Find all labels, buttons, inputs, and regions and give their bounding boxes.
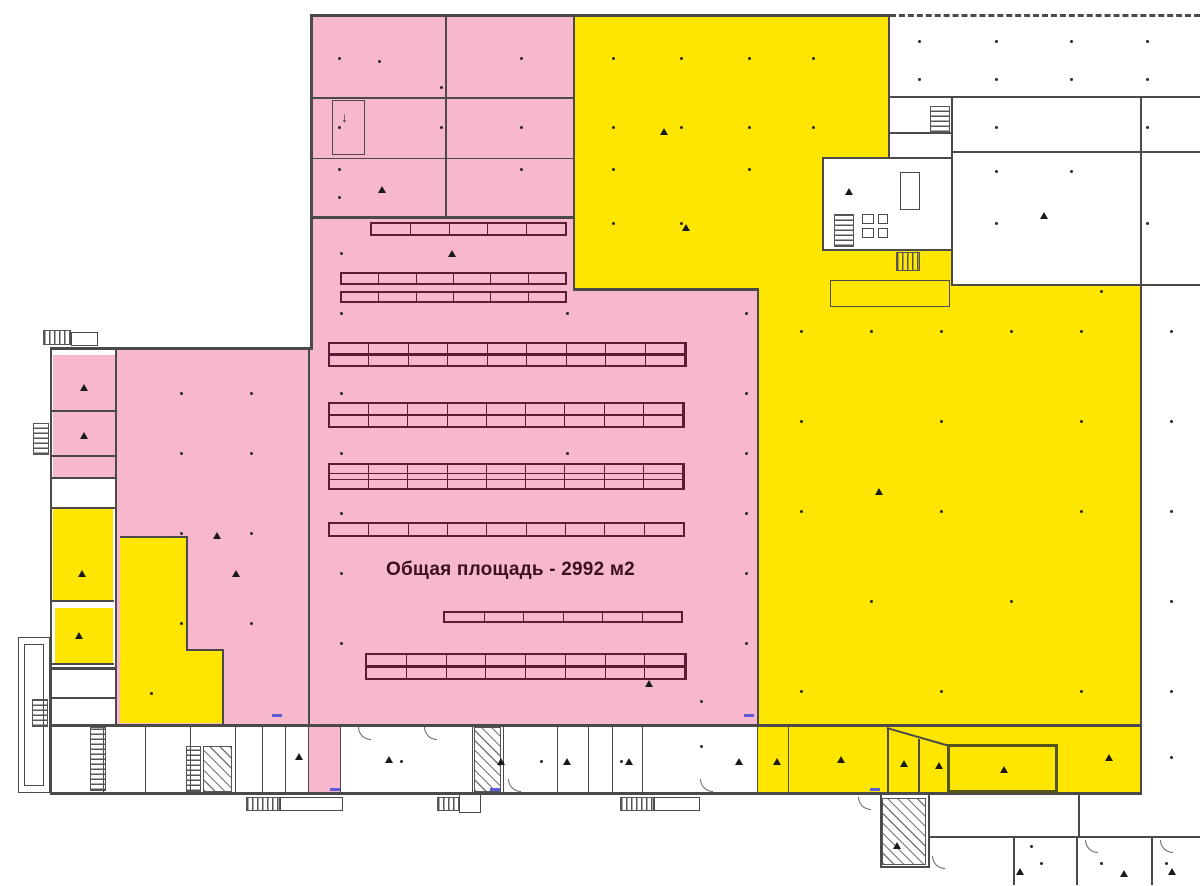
wall	[186, 536, 188, 650]
wall	[928, 794, 930, 868]
column-grid-dot	[612, 126, 615, 129]
stairs-icon	[203, 746, 232, 792]
door-arc	[424, 727, 437, 740]
survey-marker	[625, 758, 633, 765]
wall	[340, 726, 341, 793]
column-grid-dot	[1040, 862, 1043, 865]
wall	[918, 739, 920, 793]
wall	[262, 726, 263, 793]
dimension-mark	[272, 714, 282, 717]
column-grid-dot	[800, 330, 803, 333]
dimension-mark	[330, 788, 340, 791]
storage-rack-row	[340, 291, 567, 303]
column-grid-dot	[1070, 170, 1073, 173]
door-arc	[932, 856, 945, 869]
column-grid-dot	[180, 452, 183, 455]
zone-yellow-north-block	[573, 15, 890, 158]
wall	[757, 726, 758, 793]
wall	[612, 726, 613, 793]
column-grid-dot	[612, 222, 615, 225]
wall	[308, 726, 309, 793]
zone-yellow-l-room-step	[186, 650, 222, 723]
wall	[822, 158, 824, 250]
column-grid-dot	[940, 330, 943, 333]
column-grid-dot	[612, 168, 615, 171]
wall	[588, 726, 589, 793]
column-grid-dot	[340, 642, 343, 645]
wall	[573, 14, 575, 290]
stairs-icon	[896, 252, 920, 271]
wall	[50, 724, 1142, 727]
column-grid-dot	[1146, 78, 1149, 81]
column-grid-dot	[748, 168, 751, 171]
column-grid-dot	[918, 78, 921, 81]
storage-rack-row	[328, 463, 685, 490]
survey-marker	[935, 762, 943, 769]
column-grid-dot	[1146, 126, 1149, 129]
room-outline	[280, 797, 343, 811]
column-grid-dot	[748, 57, 751, 60]
zone-pink-strip-room	[308, 726, 340, 793]
room-outline	[862, 214, 874, 224]
stairs-icon	[90, 727, 106, 791]
wall	[951, 151, 1200, 153]
wall	[50, 455, 115, 457]
wall	[928, 836, 1200, 838]
column-grid-dot	[1170, 330, 1173, 333]
wall	[50, 347, 52, 794]
wall	[557, 726, 558, 793]
survey-marker	[660, 128, 668, 135]
room-outline	[878, 214, 888, 224]
door-arc	[700, 779, 713, 792]
survey-marker	[232, 570, 240, 577]
dimension-mark	[870, 788, 880, 791]
wall	[186, 649, 224, 651]
column-grid-dot	[940, 420, 943, 423]
column-grid-dot	[1170, 690, 1173, 693]
survey-marker	[845, 188, 853, 195]
column-grid-dot	[340, 452, 343, 455]
zone-yellow-west-room-a	[53, 508, 113, 600]
wall	[50, 697, 115, 699]
column-grid-dot	[995, 222, 998, 225]
column-grid-dot	[338, 196, 341, 199]
wall	[222, 649, 224, 726]
column-grid-dot	[1080, 510, 1083, 513]
room-outline	[654, 797, 700, 811]
column-grid-dot	[150, 692, 153, 695]
storage-rack-row	[370, 222, 567, 236]
wall	[310, 216, 573, 219]
column-grid-dot	[520, 168, 523, 171]
dimension-mark	[490, 788, 500, 791]
boundary-dashed-line	[890, 14, 1200, 17]
column-grid-dot	[745, 642, 748, 645]
stairs-icon	[43, 330, 71, 345]
survey-marker	[80, 432, 88, 439]
wall	[788, 726, 789, 793]
survey-marker	[735, 758, 743, 765]
total-area-label: Общая площадь - 2992 м2	[386, 559, 635, 581]
survey-marker	[893, 842, 901, 849]
wall	[757, 288, 759, 726]
column-grid-dot	[612, 57, 615, 60]
column-grid-dot	[1010, 330, 1013, 333]
column-grid-dot	[800, 510, 803, 513]
wall	[310, 14, 313, 350]
column-grid-dot	[800, 420, 803, 423]
column-grid-dot	[1070, 78, 1073, 81]
survey-marker	[1016, 868, 1024, 875]
door-arc	[508, 779, 521, 792]
column-grid-dot	[1146, 222, 1149, 225]
column-grid-dot	[440, 126, 443, 129]
door-arc	[358, 727, 371, 740]
survey-marker	[1000, 766, 1008, 773]
room-outline	[459, 794, 481, 813]
wall	[890, 96, 1200, 98]
wall	[951, 284, 1200, 286]
column-grid-dot	[340, 252, 343, 255]
column-grid-dot	[800, 690, 803, 693]
stairs-icon	[33, 423, 49, 455]
column-grid-dot	[745, 572, 748, 575]
wall	[50, 600, 114, 602]
door-arc	[1085, 840, 1098, 853]
column-grid-dot	[748, 126, 751, 129]
column-grid-dot	[700, 745, 703, 748]
column-grid-dot	[870, 600, 873, 603]
wall	[235, 726, 236, 793]
column-grid-dot	[520, 126, 523, 129]
room-outline	[71, 332, 98, 346]
column-grid-dot	[1080, 690, 1083, 693]
survey-marker	[213, 532, 221, 539]
column-grid-dot	[1080, 420, 1083, 423]
column-grid-dot	[1100, 290, 1103, 293]
wall	[888, 14, 890, 159]
column-grid-dot	[680, 126, 683, 129]
column-grid-dot	[520, 57, 523, 60]
column-grid-dot	[1146, 40, 1149, 43]
wall	[472, 726, 473, 793]
column-grid-dot	[1165, 862, 1168, 865]
column-grid-dot	[995, 78, 998, 81]
door-arc	[858, 797, 871, 810]
column-grid-dot	[940, 690, 943, 693]
column-grid-dot	[440, 86, 443, 89]
survey-marker	[378, 186, 386, 193]
column-grid-dot	[745, 512, 748, 515]
wall	[951, 96, 953, 286]
wall	[310, 14, 888, 17]
column-grid-dot	[338, 57, 341, 60]
wall	[880, 866, 930, 868]
wall	[50, 410, 115, 412]
storage-rack-row	[328, 342, 687, 367]
wall	[822, 157, 951, 159]
survey-marker	[80, 384, 88, 391]
wall	[445, 14, 447, 217]
column-grid-dot	[340, 392, 343, 395]
storage-rack-row	[365, 653, 687, 680]
column-grid-dot	[918, 40, 921, 43]
survey-marker	[448, 250, 456, 257]
wall	[887, 729, 889, 793]
column-grid-dot	[1010, 600, 1013, 603]
wall	[115, 348, 117, 725]
survey-marker	[385, 756, 393, 763]
wall	[50, 477, 115, 479]
survey-marker	[295, 753, 303, 760]
column-grid-dot	[338, 168, 341, 171]
wall	[50, 667, 115, 670]
column-grid-dot	[700, 700, 703, 703]
room-outline	[332, 100, 365, 155]
column-grid-dot	[995, 170, 998, 173]
column-grid-dot	[812, 126, 815, 129]
column-grid-dot	[180, 392, 183, 395]
wall	[1078, 794, 1080, 837]
column-grid-dot	[566, 312, 569, 315]
column-grid-dot	[340, 512, 343, 515]
column-grid-dot	[995, 126, 998, 129]
wall	[50, 507, 115, 509]
room-outline	[24, 644, 44, 786]
column-grid-dot	[1080, 330, 1083, 333]
floor-plan-canvas: Общая площадь - 2992 м2 ↓	[0, 0, 1200, 886]
wall	[310, 158, 573, 159]
column-grid-dot	[745, 312, 748, 315]
storage-rack-row	[340, 272, 567, 285]
wall	[285, 726, 286, 793]
wall	[310, 97, 573, 99]
column-grid-dot	[250, 532, 253, 535]
column-grid-dot	[378, 60, 381, 63]
column-grid-dot	[940, 510, 943, 513]
column-grid-dot	[995, 40, 998, 43]
wall	[1140, 96, 1142, 795]
column-grid-dot	[566, 452, 569, 455]
stairs-icon	[246, 797, 280, 811]
column-grid-dot	[250, 622, 253, 625]
survey-marker	[1105, 754, 1113, 761]
stairs-icon	[186, 746, 201, 792]
room-outline	[830, 280, 950, 307]
stairs-icon	[930, 106, 950, 133]
survey-marker	[1120, 870, 1128, 877]
survey-marker	[837, 756, 845, 763]
dimension-mark	[744, 714, 754, 717]
room-outline	[862, 228, 874, 238]
survey-marker	[682, 224, 690, 231]
wall	[573, 288, 759, 291]
column-grid-dot	[745, 392, 748, 395]
survey-marker	[900, 760, 908, 767]
stairs-icon	[620, 797, 654, 811]
survey-marker	[75, 632, 83, 639]
column-grid-dot	[620, 760, 623, 763]
survey-marker	[773, 758, 781, 765]
column-grid-dot	[340, 572, 343, 575]
column-grid-dot	[540, 760, 543, 763]
column-grid-dot	[400, 760, 403, 763]
column-grid-dot	[340, 312, 343, 315]
column-grid-dot	[1170, 510, 1173, 513]
column-grid-dot	[1170, 600, 1173, 603]
zone-yellow-l-room-vertical	[120, 537, 186, 723]
wall	[1013, 837, 1015, 885]
column-grid-dot	[812, 57, 815, 60]
column-grid-dot	[745, 452, 748, 455]
column-grid-dot	[680, 57, 683, 60]
down-arrow-icon: ↓	[341, 110, 348, 124]
column-grid-dot	[1100, 862, 1103, 865]
storage-rack-row	[328, 402, 685, 428]
door-arc	[1160, 840, 1173, 853]
column-grid-dot	[1070, 40, 1073, 43]
stairs-icon	[437, 797, 459, 811]
column-grid-dot	[1170, 420, 1173, 423]
zone-yellow-west-room-b	[55, 608, 113, 663]
wall	[642, 726, 643, 793]
survey-marker	[497, 758, 505, 765]
stairs-icon	[834, 214, 854, 247]
survey-marker	[1168, 868, 1176, 875]
storage-rack-row	[443, 611, 683, 623]
column-grid-dot	[1170, 756, 1173, 759]
survey-marker	[875, 488, 883, 495]
room-outline	[900, 172, 920, 210]
column-grid-dot	[180, 622, 183, 625]
survey-marker	[645, 680, 653, 687]
wall	[1076, 837, 1078, 885]
wall	[50, 663, 114, 665]
room-outline	[878, 228, 888, 238]
wall	[308, 348, 310, 726]
wall	[1151, 837, 1153, 885]
wall	[120, 536, 187, 538]
column-grid-dot	[1030, 845, 1033, 848]
column-grid-dot	[870, 330, 873, 333]
survey-marker	[78, 570, 86, 577]
wall	[145, 726, 146, 793]
column-grid-dot	[338, 126, 341, 129]
stairs-icon	[882, 798, 926, 865]
column-grid-dot	[250, 392, 253, 395]
survey-marker	[1040, 212, 1048, 219]
storage-rack-row	[328, 522, 685, 537]
wall	[822, 249, 951, 251]
zone-pink-west-rooms	[53, 355, 115, 477]
column-grid-dot	[250, 452, 253, 455]
survey-marker	[563, 758, 571, 765]
wall	[50, 347, 312, 350]
column-grid-dot	[180, 532, 183, 535]
